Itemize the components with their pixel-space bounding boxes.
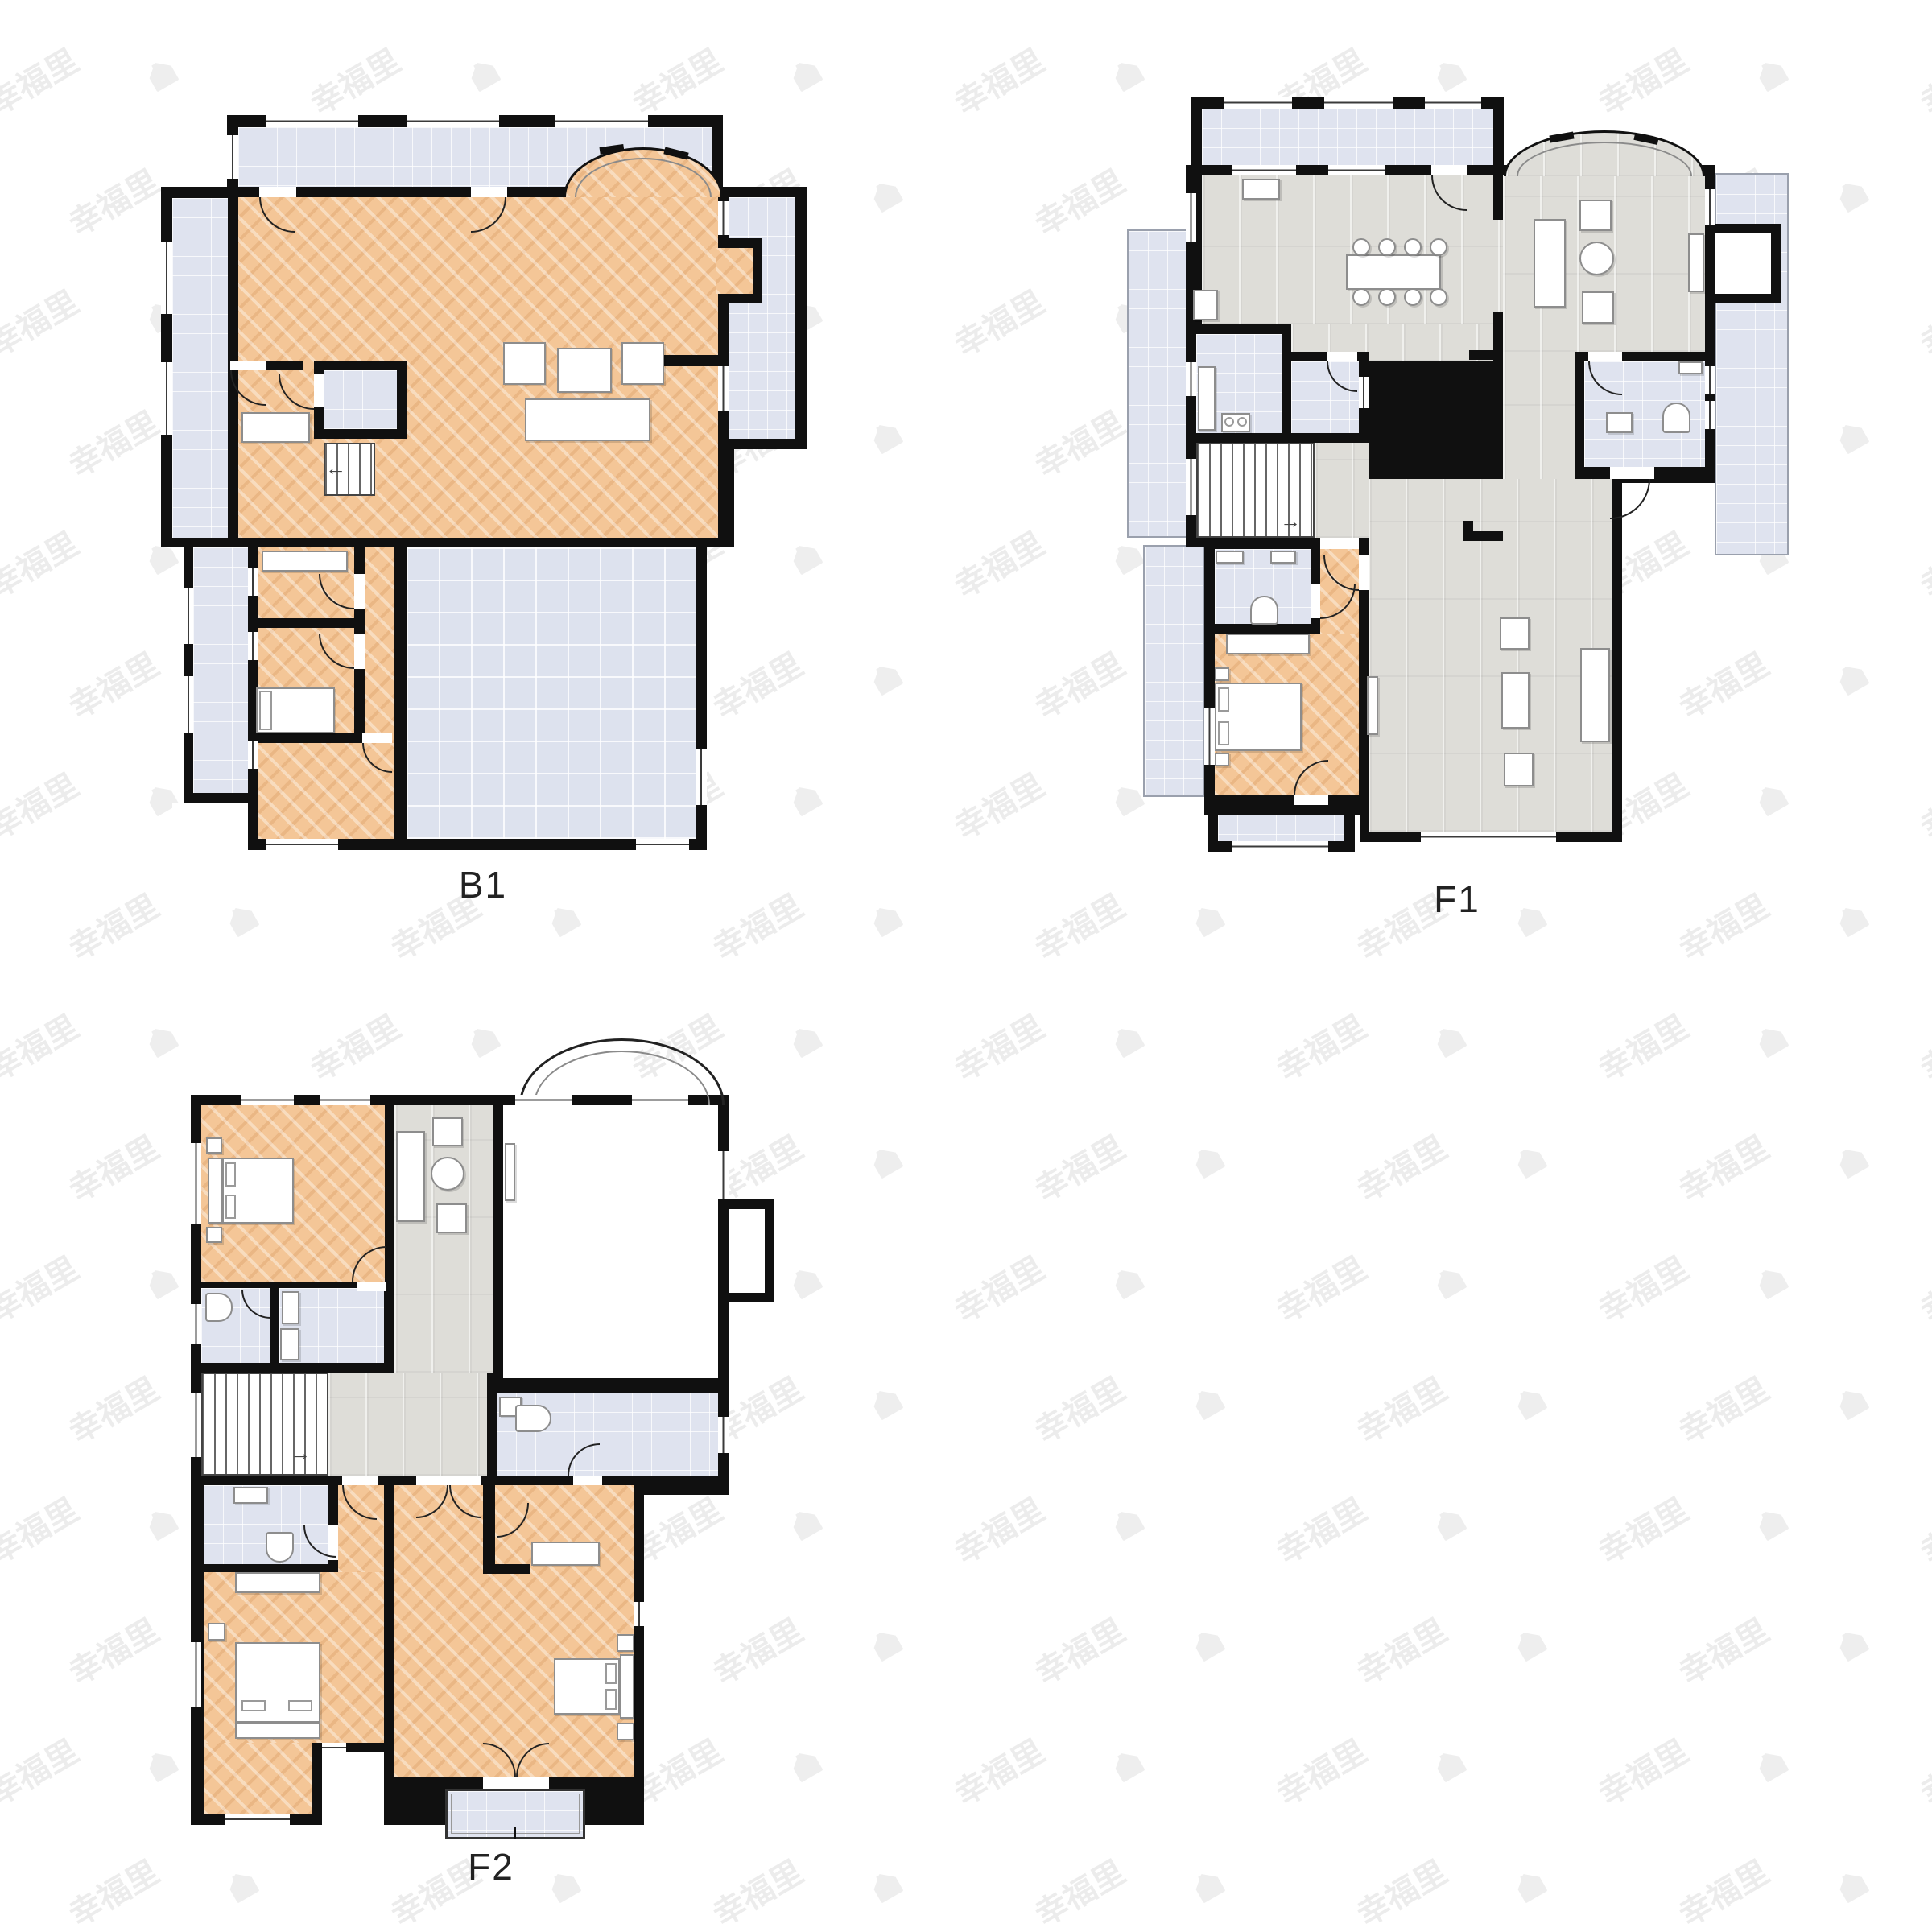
living-room-floor [1503,352,1575,483]
window [1359,377,1368,408]
watermark-house-icon [1506,1137,1557,1188]
dresser [235,1572,320,1593]
watermark-text: 幸福里 [1348,1122,1455,1211]
bed-headboard [235,1723,320,1739]
plan-f1-label: F1 [1393,877,1521,921]
watermark-text: 幸福里 [1267,1484,1374,1573]
bed-pillow [288,1700,312,1711]
bathroom-shelf [1216,551,1244,563]
sofa [1534,219,1566,308]
watermark-text: 幸福里 [1911,1726,1932,1814]
watermark-house-icon [1828,1137,1879,1188]
bed-pillow [1218,721,1229,745]
watermark-text: 幸福里 [1911,1001,1932,1090]
bed-pillow [242,1700,266,1711]
tv-cabinet [1367,676,1378,735]
watermark-text: 幸福里 [1026,1364,1133,1452]
watermark-house-icon [1426,1740,1476,1792]
door-opening [573,1476,602,1485]
watermark-house-icon [1426,1499,1476,1550]
door-opening [1431,165,1467,175]
bathroom-cabinet [1270,551,1296,563]
toilet [1250,596,1278,625]
toilet [515,1405,551,1432]
watermark-house-icon [1184,1137,1235,1188]
sink [1606,412,1633,433]
watermark-text: 幸福里 [1348,1847,1455,1932]
bed-pillow [225,1195,236,1219]
window [1705,401,1715,429]
toilet [1662,402,1690,433]
watermark-text: 幸福里 [1267,1001,1374,1090]
balcony-floor [1218,815,1344,841]
window [225,1814,290,1825]
window [718,1417,729,1453]
bed-pillow [605,1689,617,1710]
dining-chair [1352,238,1370,256]
window [191,1304,201,1344]
door-opening [1327,352,1357,361]
floorplan-canvas: 幸福里幸福里幸福里幸福里幸福里幸福里幸福里幸福里幸福里幸福里幸福里幸福里幸福里幸… [0,0,1932,1932]
nightstand [206,1227,222,1243]
door-opening [1294,795,1328,805]
sink [282,1291,299,1324]
window [515,1095,572,1105]
window [242,1095,294,1105]
door-opening [357,1282,386,1291]
window [718,1151,729,1199]
side-apron-floor [1143,545,1204,797]
watermark-text: 幸福里 [1670,1847,1777,1932]
toilet [205,1293,233,1322]
window [1186,193,1196,242]
plan-f2-label: F2 [427,1845,555,1889]
window [191,1393,201,1457]
window [634,1602,644,1626]
dining-chair [1352,288,1370,306]
dresser [531,1542,600,1566]
wall [1493,173,1503,220]
window [1186,459,1196,515]
watermark-house-icon [1104,1257,1154,1309]
exterior-gap [322,1752,384,1825]
watermark-text: 幸福里 [1267,1726,1374,1814]
wall-niche [729,1209,765,1293]
watermark-text: 幸福里 [1670,1364,1777,1452]
stove-burner [1224,417,1234,427]
kitchen-counter [1198,366,1216,431]
bathtub [280,1328,299,1360]
door-opening [1311,584,1320,618]
door-opening [1588,352,1622,361]
watermark-text: 幸福里 [1670,1605,1777,1694]
armchair [432,1117,463,1146]
window [1232,841,1328,852]
watermark-house-icon [1748,1740,1798,1792]
watermark-house-icon [1104,1016,1154,1067]
side-table [1579,242,1614,275]
tv-cabinet [505,1143,515,1201]
watermark-text: 幸福里 [1589,1484,1696,1573]
watermark-house-icon [1506,1620,1557,1671]
wall [1469,433,1503,443]
wall [483,1485,495,1570]
corridor-floor [328,1373,487,1476]
dining-chair [1430,238,1447,256]
armchair [1579,200,1612,231]
toilet [266,1532,294,1563]
balcony-divider [514,1827,516,1839]
bedroom-2-floor [204,1743,312,1814]
watermark-house-icon [1104,1499,1154,1550]
watermark-text: 幸福里 [1589,1726,1696,1814]
window [632,1095,688,1105]
door-opening [483,1777,549,1789]
nightstand [206,1137,222,1154]
cabinet [1242,179,1280,200]
watermark-text: 幸福里 [1026,1605,1133,1694]
bed-pillow [225,1162,236,1187]
bed-pillow [605,1663,617,1684]
watermark-house-icon [1506,1378,1557,1430]
watermark-text: 幸福里 [1348,1605,1455,1694]
dining-chair [1378,238,1396,256]
watermark-house-icon [1184,1861,1235,1913]
window [1425,97,1481,109]
nightstand [208,1623,225,1641]
window [320,1095,370,1105]
wall [1463,531,1503,541]
side-apron-floor [1127,229,1191,538]
watermark-house-icon [1184,1378,1235,1430]
tv-cabinet [1688,233,1704,292]
window [1421,832,1556,842]
white-room-floor [503,1105,718,1378]
watermark-house-icon [1506,1861,1557,1913]
wall [1493,312,1503,436]
window [1204,708,1215,765]
window [1705,366,1715,394]
nightstand [617,1723,634,1740]
watermark-text: 幸福里 [1026,1122,1133,1211]
window [322,1743,346,1752]
watermark-text: 幸福里 [1670,1122,1777,1211]
wall [483,1564,530,1574]
watermark-text: 幸福里 [1911,1484,1932,1573]
window [1705,189,1715,225]
window [1224,97,1292,109]
floor-plan-f2: → [0,966,966,1932]
door-opening [1359,555,1368,590]
dining-chair [1404,288,1422,306]
window [1232,165,1296,175]
watermark-house-icon [1828,1620,1879,1671]
watermark-house-icon [1748,1499,1798,1550]
nightstand [1215,753,1229,766]
floor-plan-f1: → [0,0,1932,966]
bed-headboard [620,1654,634,1719]
dining-chair [1430,288,1447,306]
stairs-direction-arrow: → [290,1441,311,1466]
bathroom-shelf [1678,361,1703,374]
door-opening [416,1476,481,1485]
window [1324,97,1393,109]
watermark-text: 幸福里 [1589,1243,1696,1331]
watermark-text: 幸福里 [1589,1001,1696,1090]
armchair [436,1203,467,1233]
sofa [396,1131,425,1222]
wall-niche [1715,233,1771,294]
nightstand [617,1634,634,1652]
window [1186,362,1196,396]
bathroom-shelf [233,1487,268,1504]
window [1328,165,1385,175]
dresser [1226,634,1310,654]
armchair [1582,291,1614,324]
sofa [1580,648,1610,742]
side-table [431,1157,464,1191]
nightstand [1215,667,1229,681]
bed-pillow [1218,687,1229,712]
watermark-house-icon [1748,1016,1798,1067]
door-opening [1320,538,1359,549]
dining-chair [1378,288,1396,306]
watermark-text: 幸福里 [1026,1847,1133,1932]
bed-headboard [208,1158,222,1224]
watermark-house-icon [1184,1620,1235,1671]
wall [1469,350,1503,360]
dining-table [1346,254,1441,290]
corridor-floor [1315,443,1368,538]
window [191,1143,201,1224]
armchair [1504,753,1534,786]
door-opening [342,1476,378,1485]
table [1501,672,1529,729]
door-arc [1610,479,1650,519]
armchair [1500,617,1529,650]
top-terrace-floor [1202,109,1493,165]
dining-chair [1404,238,1422,256]
stove-burner [1237,417,1247,427]
watermark-house-icon [1426,1257,1476,1309]
stairs-direction-arrow: → [1280,509,1301,534]
watermark-house-icon [1104,1740,1154,1792]
watermark-text: 幸福里 [1348,1364,1455,1452]
watermark-text: 幸福里 [1267,1243,1374,1331]
watermark-house-icon [1748,1257,1798,1309]
watermark-house-icon [1426,1016,1476,1067]
window [191,1642,201,1707]
watermark-house-icon [1828,1378,1879,1430]
watermark-house-icon [1828,1861,1879,1913]
watermark-text: 幸福里 [1911,1243,1932,1331]
refrigerator [1193,290,1218,320]
door-opening [1610,467,1654,479]
